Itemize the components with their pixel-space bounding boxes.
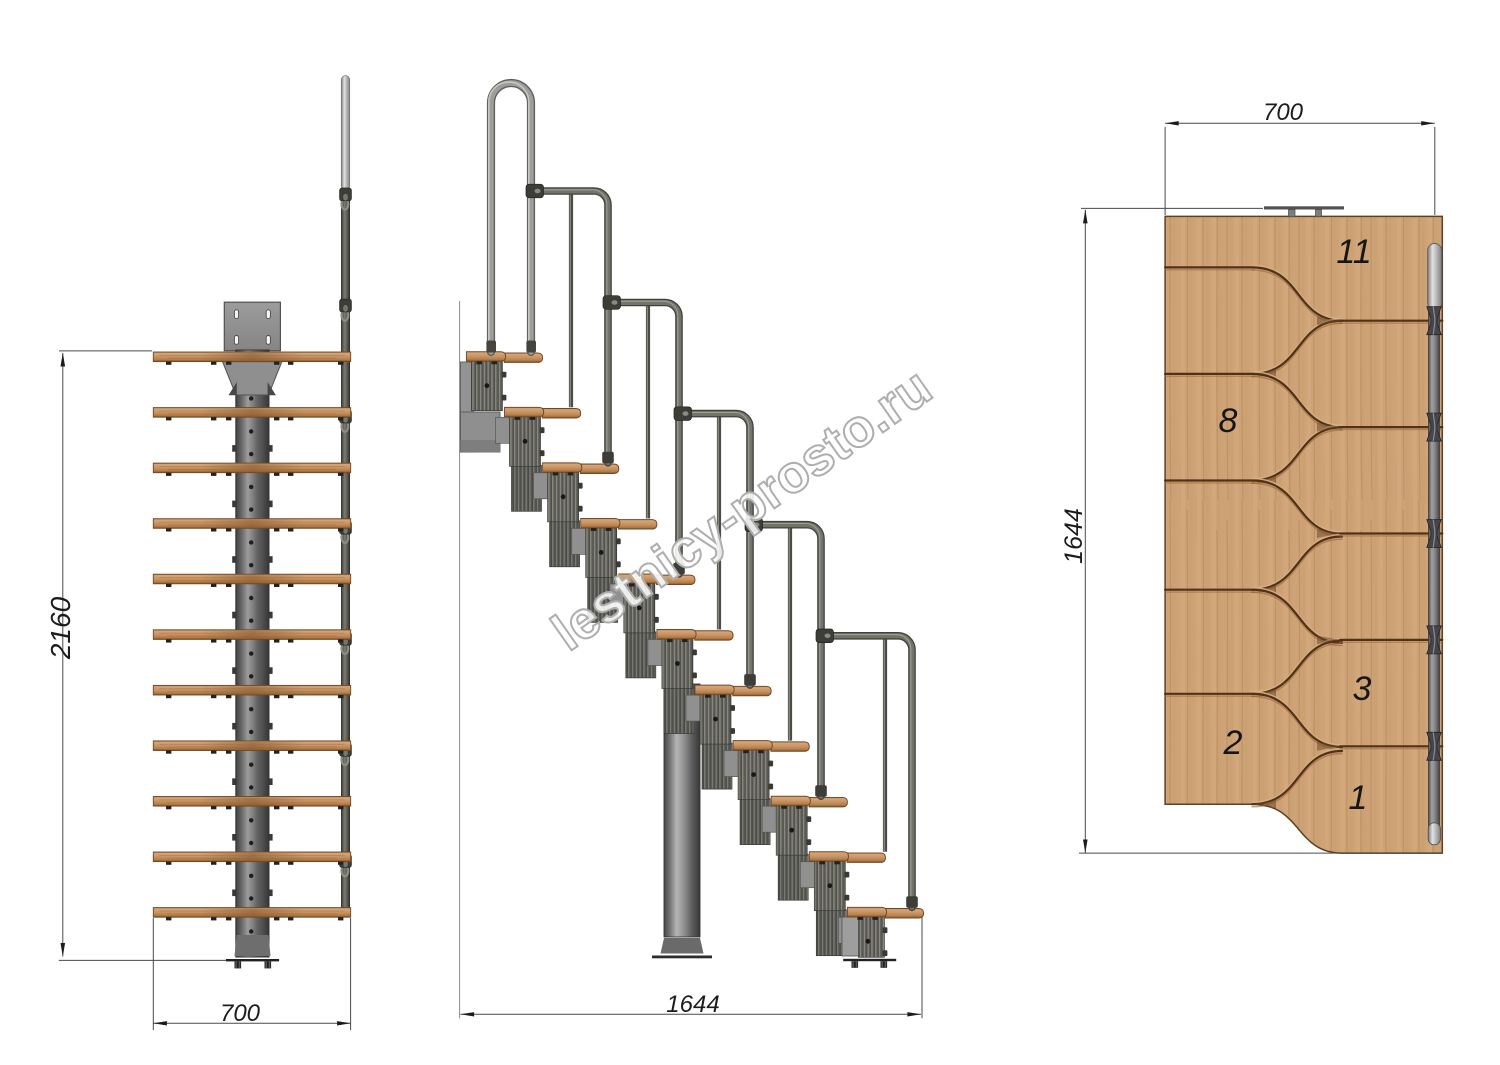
svg-text:2: 2 bbox=[1223, 724, 1243, 762]
svg-text:11: 11 bbox=[1336, 233, 1371, 271]
svg-text:1644: 1644 bbox=[1060, 508, 1088, 564]
svg-text:2160: 2160 bbox=[45, 596, 76, 660]
svg-text:1: 1 bbox=[1349, 779, 1368, 817]
svg-text:700: 700 bbox=[220, 1000, 261, 1027]
svg-text:700: 700 bbox=[1263, 99, 1304, 126]
svg-text:lestnicy-prosto.ru: lestnicy-prosto.ru bbox=[542, 357, 943, 662]
svg-text:3: 3 bbox=[1353, 670, 1372, 708]
svg-text:1644: 1644 bbox=[666, 991, 719, 1018]
svg-text:8: 8 bbox=[1219, 402, 1238, 440]
